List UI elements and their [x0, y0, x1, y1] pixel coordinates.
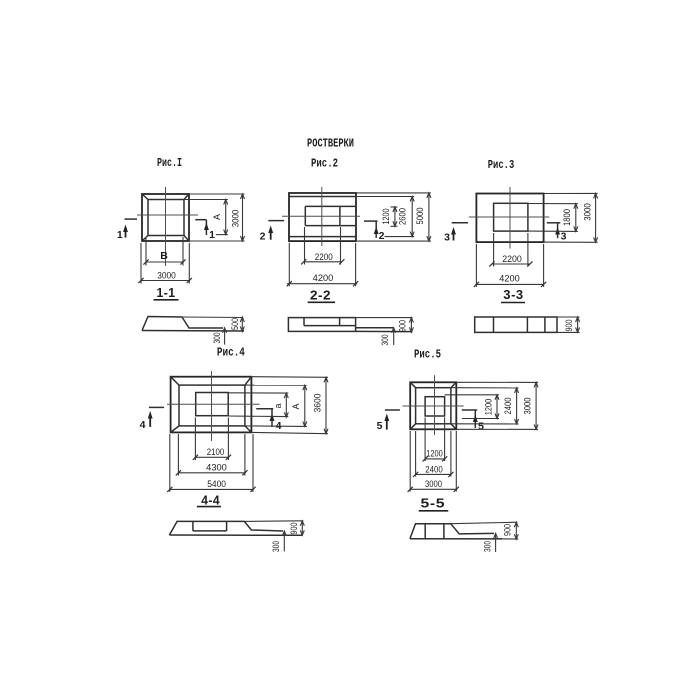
- svg-text:А: А: [291, 403, 301, 409]
- svg-text:4-4: 4-4: [201, 492, 220, 507]
- svg-text:Рис.2: Рис.2: [311, 157, 338, 171]
- svg-text:3: 3: [444, 232, 450, 244]
- svg-text:300: 300: [380, 335, 390, 346]
- svg-text:5-5: 5-5: [421, 496, 446, 511]
- svg-text:500: 500: [230, 318, 240, 330]
- svg-text:5: 5: [377, 420, 383, 432]
- svg-text:1200: 1200: [426, 449, 443, 459]
- svg-text:4: 4: [140, 419, 146, 431]
- svg-text:А: А: [212, 214, 222, 220]
- svg-text:3000: 3000: [425, 479, 442, 489]
- svg-text:900: 900: [398, 320, 408, 332]
- svg-text:1: 1: [209, 229, 215, 241]
- svg-text:Рис.4: Рис.4: [217, 346, 245, 360]
- svg-text:900: 900: [503, 524, 513, 536]
- svg-text:5400: 5400: [207, 479, 226, 489]
- svg-text:300: 300: [482, 541, 492, 552]
- svg-text:5000: 5000: [415, 208, 425, 225]
- svg-text:2100: 2100: [207, 447, 225, 457]
- svg-text:3000: 3000: [523, 398, 533, 415]
- svg-text:2: 2: [379, 230, 385, 242]
- svg-text:3-3: 3-3: [503, 287, 523, 302]
- svg-text:1-1: 1-1: [157, 285, 176, 300]
- svg-text:2400: 2400: [503, 398, 513, 415]
- svg-text:2200: 2200: [502, 254, 522, 264]
- svg-text:300: 300: [271, 541, 281, 552]
- svg-text:Рис.3: Рис.3: [488, 158, 515, 172]
- svg-text:4300: 4300: [206, 463, 227, 473]
- svg-text:2400: 2400: [425, 464, 443, 474]
- svg-text:Рис.5: Рис.5: [414, 348, 441, 362]
- svg-text:а: а: [273, 403, 283, 408]
- svg-text:4200: 4200: [499, 274, 519, 284]
- svg-text:300: 300: [212, 333, 222, 344]
- svg-text:1200: 1200: [381, 209, 391, 225]
- svg-text:900: 900: [289, 523, 299, 535]
- svg-text:3000: 3000: [583, 203, 593, 221]
- svg-text:В: В: [160, 250, 168, 262]
- svg-text:4200: 4200: [313, 273, 334, 283]
- svg-text:2200: 2200: [315, 252, 333, 262]
- svg-text:Рис.I: Рис.I: [157, 156, 182, 170]
- svg-text:3: 3: [561, 231, 567, 243]
- svg-text:3000: 3000: [157, 271, 176, 281]
- svg-text:2-2: 2-2: [310, 288, 331, 303]
- svg-text:2: 2: [260, 231, 266, 243]
- svg-text:РОСТВЕРКИ: РОСТВЕРКИ: [307, 137, 354, 151]
- svg-text:1800: 1800: [562, 209, 572, 226]
- svg-text:5: 5: [478, 421, 484, 433]
- svg-text:3600: 3600: [313, 394, 323, 413]
- svg-text:1: 1: [117, 229, 123, 241]
- svg-text:1200: 1200: [484, 399, 494, 416]
- svg-text:900: 900: [564, 320, 574, 332]
- svg-text:2600: 2600: [398, 208, 408, 225]
- svg-text:3000: 3000: [231, 210, 241, 228]
